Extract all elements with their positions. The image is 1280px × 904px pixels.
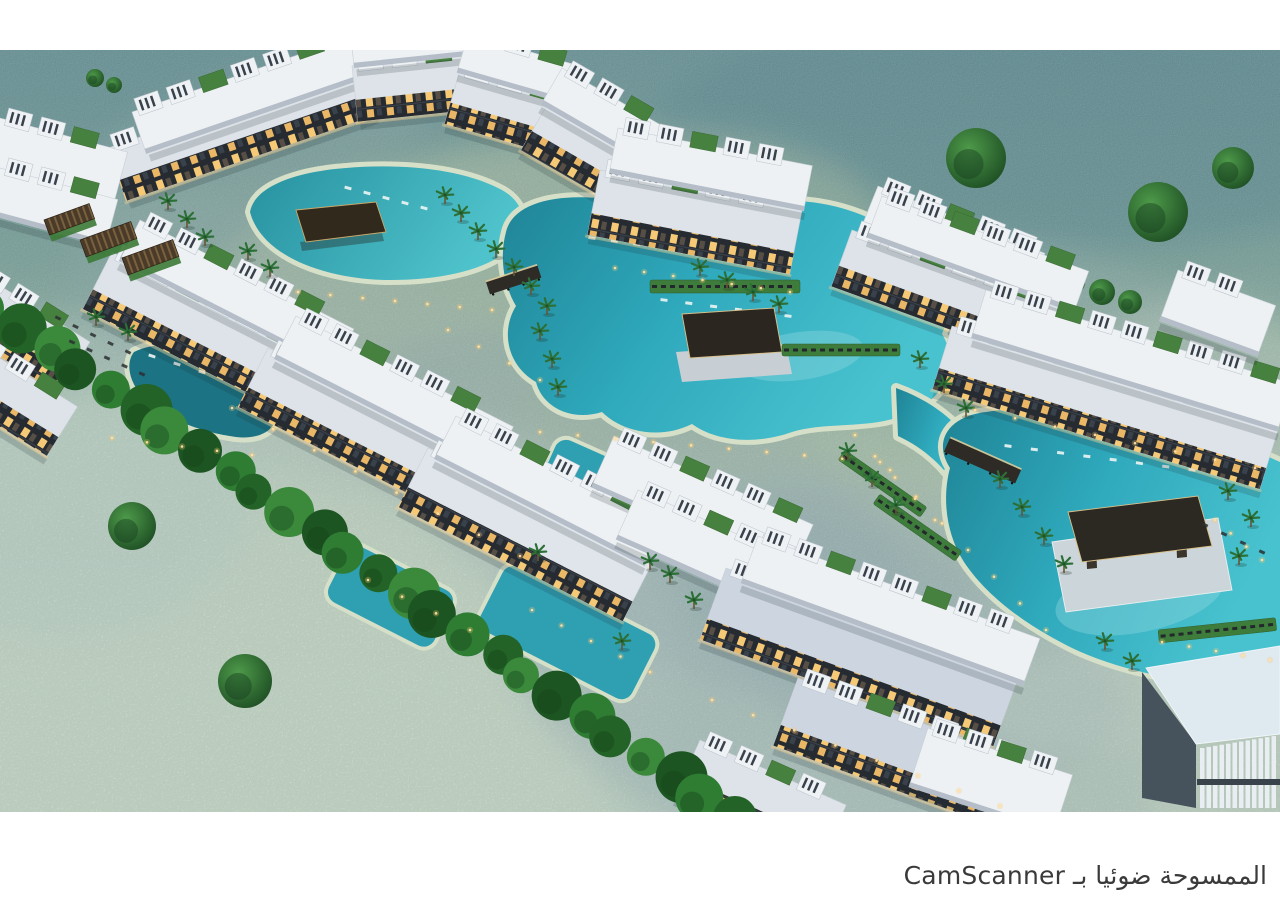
lamp-light [576, 434, 579, 437]
sun-lounger [1196, 630, 1201, 634]
lamp-light [728, 447, 731, 450]
sun-lounger [1161, 634, 1166, 638]
hedge-bush-shade [413, 608, 437, 632]
palm-shadow [1247, 525, 1259, 529]
lamp-light [354, 470, 357, 473]
lamp-light [436, 512, 439, 515]
pavilion-lagoon-central [676, 308, 792, 382]
lamp-light [447, 329, 450, 332]
palm-shadow [892, 512, 904, 516]
lamp-light [401, 595, 404, 598]
lamp-light [619, 655, 622, 658]
palm-crown [186, 218, 189, 221]
resort-aerial-render [0, 50, 1280, 812]
palm-shadow [749, 299, 761, 303]
palm-shadow [124, 339, 136, 343]
lamp-light [730, 283, 733, 286]
louver-slat [1265, 737, 1270, 808]
palm-crown [965, 407, 968, 410]
lamp-light [539, 379, 542, 382]
lamp-light [1269, 659, 1272, 662]
palm-crown [1131, 660, 1134, 663]
palm-shadow [92, 324, 104, 328]
lamp-light [531, 609, 534, 612]
sun-lounger [1205, 630, 1210, 634]
louver-slat [1200, 748, 1205, 808]
sun-lounger [715, 285, 720, 288]
palm-crown [699, 266, 702, 269]
palm-shadow [775, 311, 787, 315]
louver-slat [1239, 742, 1244, 809]
palm-crown [557, 386, 560, 389]
sun-lounger [1214, 629, 1219, 633]
lamp-light [1214, 519, 1217, 522]
palm-crown [1104, 640, 1107, 643]
palm-crown [726, 279, 729, 282]
lamp-light [539, 431, 542, 434]
sun-lounger [1259, 624, 1264, 628]
hedge-bush-shade [2, 322, 27, 347]
lamp-light [752, 714, 755, 717]
lamp-light [1019, 602, 1022, 605]
lamp-light [1242, 654, 1245, 657]
palm-crown [669, 573, 672, 576]
lamp-light [146, 441, 149, 444]
lamp-light [435, 612, 438, 615]
lamp-light [426, 303, 429, 306]
hedge-bush-shade [593, 731, 614, 752]
lamp-light [469, 629, 472, 632]
lamp-light [690, 444, 693, 447]
lamp-light [701, 279, 704, 282]
tree-shade [1092, 288, 1105, 301]
palm-shadow [1224, 498, 1236, 502]
sun-lounger [847, 349, 852, 352]
palm-crown [919, 358, 922, 361]
palm-shadow [916, 366, 928, 370]
lamp-light [1215, 650, 1218, 653]
lamp-light [958, 790, 961, 793]
palm-shadow [1128, 668, 1140, 672]
lamp-light [614, 437, 617, 440]
louver-slat [1213, 746, 1218, 808]
palm-shadow [536, 338, 548, 342]
palm-crown [778, 303, 781, 306]
lawn-strip [782, 344, 900, 356]
lamp-light [297, 291, 300, 294]
lamp-light [231, 407, 234, 410]
palm-shadow [548, 366, 560, 370]
palm-shadow [666, 581, 678, 585]
lamp-light [803, 454, 806, 457]
louver-slat [1246, 740, 1251, 808]
lamp-light [854, 434, 857, 437]
lamp-light [1054, 425, 1057, 428]
tree-shade [108, 83, 116, 91]
palm-crown [127, 331, 130, 334]
lamp-light [889, 469, 892, 472]
palm-shadow [492, 256, 504, 260]
sun-lounger [1250, 625, 1255, 629]
palm-shadow [201, 244, 213, 248]
palm-crown [444, 194, 447, 197]
palm-crown [477, 230, 480, 233]
palm-crown [693, 599, 696, 602]
palm-crown [1250, 517, 1253, 520]
palm-crown [167, 200, 170, 203]
palm-crown [551, 358, 554, 361]
palm-crown [752, 291, 755, 294]
palm-shadow [183, 226, 195, 230]
palm-shadow [266, 275, 278, 279]
palm-crown [1063, 563, 1066, 566]
sun-lounger [1268, 623, 1273, 627]
louver-slat [1259, 738, 1264, 808]
lamp-light [394, 300, 397, 303]
lamp-light [967, 549, 970, 552]
palm-crown [460, 212, 463, 215]
lamp-light [934, 519, 937, 522]
lamp-light [614, 267, 617, 270]
palm-crown [895, 504, 898, 507]
tree-shade [1121, 298, 1133, 310]
lamp-light [711, 699, 714, 702]
louver-slat [1233, 743, 1238, 808]
lamp-light [914, 497, 917, 500]
sun-lounger [856, 349, 861, 352]
palm-shadow [527, 293, 539, 297]
hedge-bush-shade [326, 548, 347, 569]
sun-lounger [706, 285, 711, 288]
lamp-light [508, 362, 511, 365]
palm-shadow [441, 202, 453, 206]
lamp-light [894, 476, 897, 479]
sun-lounger [652, 285, 657, 288]
louver-slat [1207, 747, 1212, 808]
sun-lounger [883, 349, 888, 352]
lamp-light [1174, 450, 1177, 453]
lamp-light [458, 306, 461, 309]
lamp-light [1254, 467, 1257, 470]
sun-lounger [820, 349, 825, 352]
lamp-light [875, 759, 878, 762]
pool-top-left [250, 166, 523, 280]
lamp-light [834, 744, 837, 747]
hedge-bush-shade [631, 752, 650, 771]
tree-shade [954, 149, 984, 179]
sun-lounger [688, 285, 693, 288]
lamp-light [329, 294, 332, 297]
palm-crown [546, 305, 549, 308]
hedge-bush-shade [220, 466, 240, 486]
louver-slat [1272, 736, 1277, 808]
sun-lounger [1232, 627, 1237, 631]
palm-shadow [164, 208, 176, 212]
lamp-light [361, 297, 364, 300]
palm-crown [495, 248, 498, 251]
sun-lounger [697, 285, 702, 288]
lamp-light [251, 454, 254, 457]
sun-lounger [811, 349, 816, 352]
hedge-bush-shade [507, 671, 525, 689]
louver-slat [1220, 745, 1225, 808]
palm-shadow [543, 313, 555, 317]
lawn-strip [650, 280, 800, 293]
palm-crown [1238, 555, 1241, 558]
lamp-light [760, 287, 763, 290]
sun-lounger [769, 285, 774, 288]
palm-crown [1227, 490, 1230, 493]
sun-lounger [874, 349, 879, 352]
palm-shadow [844, 458, 856, 462]
scanned-page: الممسوحة ضوئيا بـ CamScanner [0, 0, 1280, 904]
palm-crown [537, 551, 540, 554]
tree-shade [1136, 203, 1166, 233]
lamp-light [793, 729, 796, 732]
palm-crown [1043, 535, 1046, 538]
lamp-light [941, 522, 944, 525]
tree-shade [114, 519, 138, 543]
lamp-light [789, 291, 792, 294]
lamp-light [313, 449, 316, 452]
sun-lounger [1169, 633, 1174, 637]
palm-shadow [1018, 514, 1030, 518]
lamp-light [519, 555, 522, 558]
hedge-bush-shade [487, 650, 507, 670]
hedge-bush-shade [182, 445, 204, 467]
pavilion-slatted-se [1142, 646, 1280, 808]
lamp-light [649, 671, 652, 674]
palm-crown [269, 267, 272, 270]
palm-shadow [474, 238, 486, 242]
palm-shadow [1101, 648, 1113, 652]
lamp-light [841, 457, 844, 460]
lamp-light [1245, 545, 1248, 548]
palm-shadow [646, 568, 658, 572]
palm-shadow [723, 287, 735, 291]
pavilion-lagoon-central-face [682, 308, 782, 358]
lamp-light [1094, 434, 1097, 437]
palm-crown [871, 477, 874, 480]
lamp-light [1229, 532, 1232, 535]
lamp-light [1214, 458, 1217, 461]
palm-crown [539, 330, 542, 333]
palm-shadow [962, 415, 974, 419]
sun-lounger [865, 349, 870, 352]
louver-slat [1252, 739, 1257, 808]
lamp-light [974, 409, 977, 412]
palm-crown [943, 383, 946, 386]
lamp-light [765, 451, 768, 454]
lamp-light [491, 309, 494, 312]
sun-lounger [1241, 626, 1246, 630]
sun-lounger [892, 349, 897, 352]
sun-lounger [670, 285, 675, 288]
sun-lounger [778, 285, 783, 288]
tree-shade [88, 75, 97, 84]
louver-slat [1226, 744, 1231, 808]
lamp-light [367, 579, 370, 582]
sun-lounger [829, 349, 834, 352]
palm-crown [204, 236, 207, 239]
palm-shadow [457, 220, 469, 224]
lamp-light [111, 437, 114, 440]
lamp-light [1134, 442, 1137, 445]
palm-crown [247, 250, 250, 253]
palm-crown [513, 266, 516, 269]
hedge-bush-shade [239, 487, 257, 505]
lamp-light [590, 640, 593, 643]
palm-crown [649, 560, 652, 563]
lamp-light [879, 461, 882, 464]
lamp-light [216, 449, 219, 452]
palm-shadow [534, 559, 546, 563]
palm-shadow [1060, 571, 1072, 575]
palm-crown [621, 640, 624, 643]
palm-shadow [244, 258, 256, 262]
hedge-bush-shade [96, 385, 115, 404]
palm-shadow [1040, 543, 1052, 547]
hedge-bush-shade [269, 506, 294, 531]
sun-lounger [1178, 632, 1183, 636]
lamp-light [1045, 629, 1048, 632]
palm-crown [1021, 506, 1024, 509]
lamp-light [478, 534, 481, 537]
sun-lounger [661, 285, 666, 288]
sun-lounger [787, 285, 792, 288]
palm-crown [847, 450, 850, 453]
tree-shade [225, 673, 252, 700]
palm-shadow [996, 486, 1008, 490]
lamp-light [1261, 559, 1264, 562]
palm-crown [95, 316, 98, 319]
hedge-bush-shade [58, 364, 79, 385]
palm-shadow [868, 485, 880, 489]
palm-shadow [1235, 563, 1247, 567]
camscanner-caption: الممسوحة ضوئيا بـ CamScanner [904, 861, 1267, 890]
sun-lounger [1223, 628, 1228, 632]
hedge-bush-shade [537, 689, 562, 714]
tree-shade [1217, 162, 1238, 183]
lamp-light [652, 441, 655, 444]
sun-lounger [784, 349, 789, 352]
palm-shadow [510, 274, 522, 278]
lamp-light [916, 774, 919, 777]
sun-lounger [802, 349, 807, 352]
lamp-light [1161, 641, 1164, 644]
palm-shadow [554, 394, 566, 398]
lamp-light [1014, 417, 1017, 420]
palm-crown [530, 285, 533, 288]
lamp-light [477, 345, 480, 348]
lamp-light [643, 271, 646, 274]
lamp-light [999, 805, 1002, 808]
sun-lounger [838, 349, 843, 352]
palm-shadow [690, 607, 702, 611]
lamp-light [181, 445, 184, 448]
lamp-light [672, 275, 675, 278]
louver-beam [1197, 779, 1280, 785]
lamp-light [395, 491, 398, 494]
sun-lounger [1187, 631, 1192, 635]
lamp-light [560, 624, 563, 627]
sun-lounger [793, 349, 798, 352]
lamp-light [1188, 645, 1191, 648]
lamp-light [272, 428, 275, 431]
lamp-light [993, 575, 996, 578]
palm-shadow [618, 648, 630, 652]
palm-shadow [940, 391, 952, 395]
palm-crown [999, 478, 1002, 481]
sun-lounger [679, 285, 684, 288]
lamp-light [874, 455, 877, 458]
